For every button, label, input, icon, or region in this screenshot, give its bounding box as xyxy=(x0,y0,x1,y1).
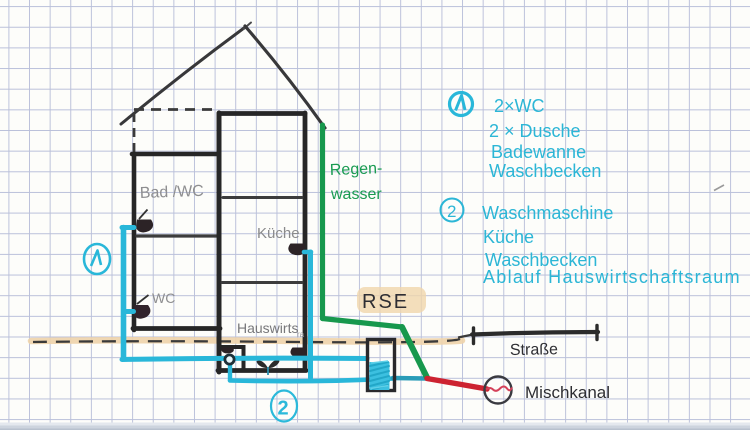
svg-text:Bad /WC: Bad /WC xyxy=(140,183,205,202)
svg-text:RSE: RSE xyxy=(362,291,409,313)
svg-text:Ablauf Hauswirtschaftsraum: Ablauf Hauswirtschaftsraum xyxy=(483,267,741,287)
svg-text:Küche: Küche xyxy=(483,227,534,247)
svg-text:Mischkanal: Mischkanal xyxy=(525,383,610,402)
svg-text:WC: WC xyxy=(152,290,175,306)
svg-text:2: 2 xyxy=(447,202,456,221)
svg-text:Waschbecken: Waschbecken xyxy=(489,161,601,181)
svg-text:2 × Dusche: 2 × Dusche xyxy=(489,121,581,141)
svg-text:Küche: Küche xyxy=(257,225,300,242)
svg-text:Hauswirts: Hauswirts xyxy=(237,320,298,336)
svg-text:2: 2 xyxy=(278,398,289,420)
svg-text:2×WC: 2×WC xyxy=(494,96,545,116)
svg-text:wasser: wasser xyxy=(330,186,382,203)
svg-text:Straße: Straße xyxy=(510,341,558,359)
svg-text:Regen-: Regen- xyxy=(330,160,383,179)
svg-text:Badewanne: Badewanne xyxy=(491,142,586,162)
svg-text:Waschmaschine: Waschmaschine xyxy=(482,203,613,223)
svg-text:ra: ra xyxy=(297,330,305,339)
